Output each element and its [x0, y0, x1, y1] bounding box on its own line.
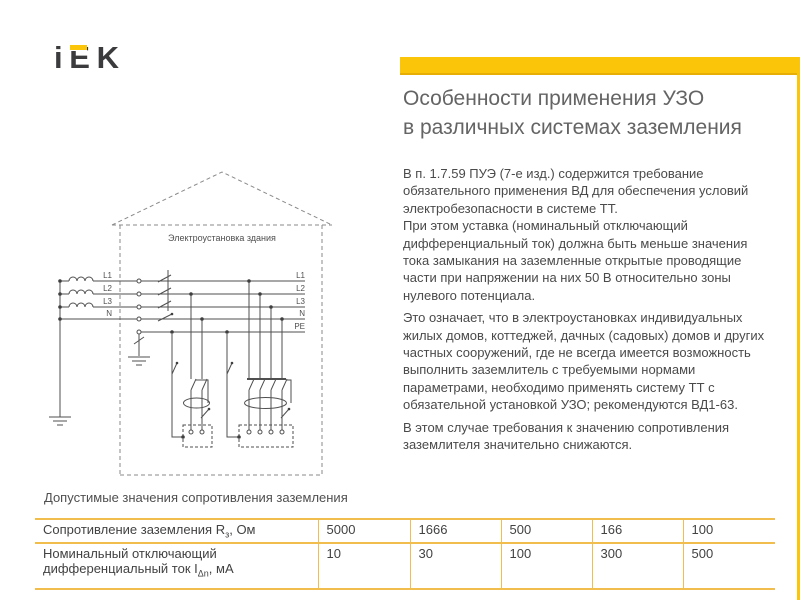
label-pe-right: PE — [294, 322, 305, 331]
table-cell: 1666 — [410, 519, 501, 543]
table-cell: 166 — [592, 519, 683, 543]
iek-logo: i E K — [54, 42, 118, 73]
table-row: Сопротивление заземления Rз, Ом 5000 166… — [35, 519, 775, 543]
table-row: Номинальный отключающий дифференциальный… — [35, 543, 775, 589]
row-label: Сопротивление заземления Rз, Ом — [35, 519, 318, 543]
table-cell: 500 — [501, 519, 592, 543]
accent-bar — [400, 57, 800, 75]
table-cell: 10 — [318, 543, 410, 589]
main-switch-icon — [158, 270, 172, 321]
table-cell: 300 — [592, 543, 683, 589]
title-line-2: в различных системах заземления — [403, 113, 793, 142]
logo-letter-e: E — [69, 42, 89, 73]
load-box-2 — [239, 425, 293, 447]
tt-system-circuit-diagram: Электроустановка здания L1 L2 L3 N L1 L2… — [28, 160, 368, 486]
coil-l1-icon — [69, 277, 93, 281]
pe-ground-icon — [128, 334, 150, 365]
paragraph: В этом случае требования к значению сопр… — [403, 419, 777, 454]
entry-terminals — [137, 279, 141, 334]
label-l3-left: L3 — [103, 297, 112, 306]
table-cell: 500 — [683, 543, 775, 589]
logo-letter-k: K — [97, 40, 118, 75]
table-cell: 100 — [683, 519, 775, 543]
label-l1-right: L1 — [296, 271, 305, 280]
grounding-resistance-table: Сопротивление заземления Rз, Ом 5000 166… — [35, 518, 775, 590]
label-l2-left: L2 — [103, 284, 112, 293]
label-l1-left: L1 — [103, 271, 112, 280]
rcd-2pole — [184, 294, 210, 430]
label-l3-right: L3 — [296, 297, 305, 306]
paragraph: В п. 1.7.59 ПУЭ (7-е изд.) содержится тр… — [403, 165, 777, 217]
load-box-1 — [183, 425, 212, 447]
source-ground-icon — [49, 417, 71, 425]
house-label: Электроустановка здания — [168, 233, 276, 243]
paragraph: При этом уставка (номинальный отключающи… — [403, 217, 777, 304]
label-l2-right: L2 — [296, 284, 305, 293]
logo-letter-i: i — [54, 40, 62, 75]
body-text: В п. 1.7.59 ПУЭ (7-е изд.) содержится тр… — [403, 165, 777, 454]
pe-branch-1 — [172, 334, 183, 437]
table-cell: 30 — [410, 543, 501, 589]
rcd-4pole — [245, 281, 292, 430]
title-line-1: Особенности применения УЗО — [403, 84, 793, 113]
coil-l2-icon — [69, 290, 93, 294]
slide: i E K Особенности применения УЗО в разли… — [0, 0, 800, 600]
toroid-icon — [245, 398, 287, 409]
junction-dots — [58, 279, 290, 439]
pe-branch-2 — [227, 334, 239, 437]
label-n-left: N — [106, 309, 112, 318]
label-n-right: N — [299, 309, 305, 318]
toroid-icon — [184, 398, 210, 408]
table-caption: Допустимые значения сопротивления заземл… — [44, 490, 348, 505]
page-title: Особенности применения УЗО в различных с… — [403, 84, 793, 142]
coil-l3-icon — [69, 303, 93, 307]
row-label: Номинальный отключающий дифференциальный… — [35, 543, 318, 589]
right-line-labels: L1 L2 L3 N PE — [294, 271, 305, 331]
table-cell: 100 — [501, 543, 592, 589]
table-cell: 5000 — [318, 519, 410, 543]
paragraph: Это означает, что в электроустановках ин… — [403, 309, 777, 413]
